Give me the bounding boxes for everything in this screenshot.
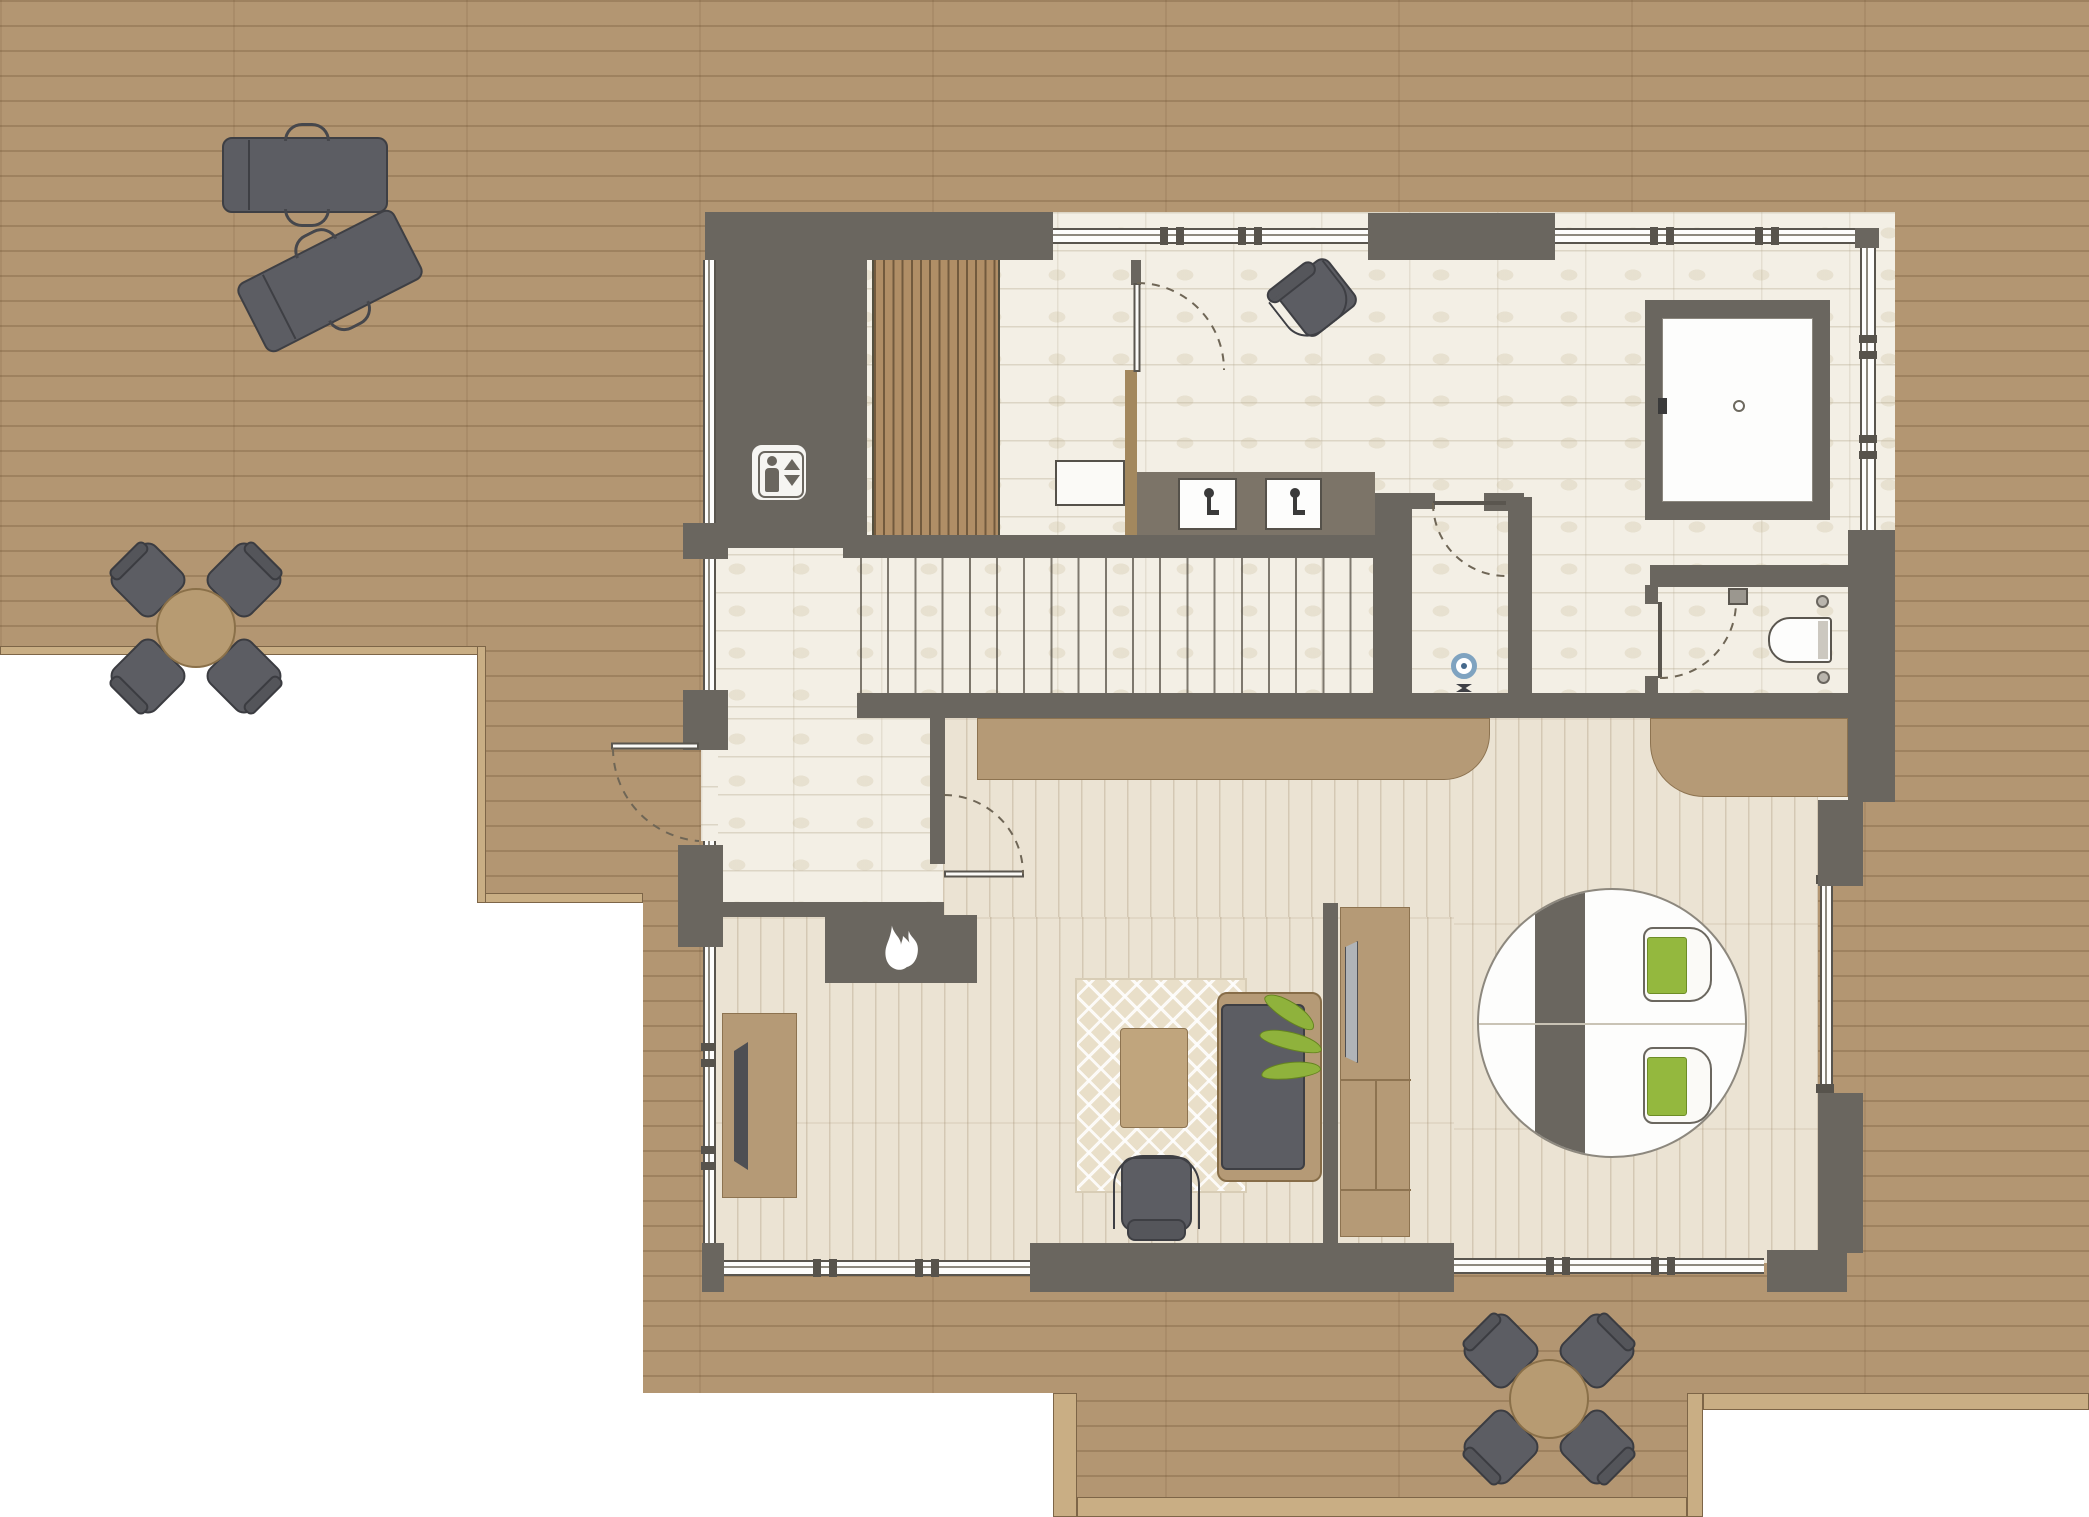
coffee-table — [1120, 1028, 1188, 1128]
toilet-tank — [1818, 621, 1828, 659]
window-mullion — [1562, 1257, 1570, 1275]
tv-sideboard — [722, 1013, 797, 1198]
window-mullion — [701, 1162, 716, 1170]
deck-edge-board — [1053, 1393, 1077, 1517]
wall-top-middle — [1368, 213, 1555, 260]
green-chair — [1643, 1047, 1712, 1124]
window-mullion — [1651, 1257, 1659, 1275]
green-chair-cushion — [1647, 1057, 1687, 1116]
window-right-upper — [1860, 242, 1876, 534]
toilet — [1768, 617, 1832, 663]
drain-icon — [1451, 653, 1477, 679]
window-mullion — [813, 1259, 821, 1277]
window-mullion — [915, 1259, 923, 1277]
deck-edge-board — [1703, 1393, 2089, 1410]
window-mullion — [1650, 227, 1658, 245]
media-cabinet — [1340, 907, 1410, 1237]
round-table-seam — [1479, 1023, 1747, 1025]
elevator-person-body — [765, 468, 779, 492]
elevator-shaft — [712, 258, 867, 548]
elevator-icon — [752, 445, 806, 500]
flame-icon — [875, 924, 927, 974]
wall-wc-west-stub — [1645, 585, 1658, 604]
wall-stairs-south — [857, 693, 1848, 718]
wall-shower-west — [1390, 505, 1412, 693]
bathtub-surround — [1645, 300, 1830, 520]
floor-plan-canvas — [0, 0, 2089, 1517]
sofa-seat — [1221, 1004, 1305, 1170]
window-mullion — [1771, 227, 1779, 245]
window-mullion — [1666, 227, 1674, 245]
sink-basin — [1265, 478, 1322, 530]
window-mullion — [1859, 351, 1877, 359]
window-mullion — [1546, 1257, 1554, 1275]
wood-slat-screen — [872, 258, 1000, 535]
window-mullion — [1176, 227, 1184, 245]
window-mullion — [1816, 1084, 1834, 1093]
wall-corner-bottomright — [1767, 1250, 1847, 1292]
wall-shower-east — [1508, 497, 1532, 718]
window-mullion — [1667, 1257, 1675, 1275]
sofa — [1217, 992, 1322, 1182]
tv-screen — [734, 1042, 748, 1170]
wall-right-bedroom-a — [1818, 800, 1863, 886]
wall-stairs-north — [843, 535, 1377, 558]
vanity-counter — [1137, 472, 1375, 535]
window-living-south — [714, 1260, 1032, 1276]
outdoor-round-table — [156, 588, 236, 668]
built-in-cabinet — [977, 718, 1490, 780]
tile-floor-vestibule — [705, 718, 945, 918]
wall-shower-jamb — [1407, 493, 1435, 509]
deck-edge-board — [1077, 1497, 1687, 1517]
deck-edge-board — [1687, 1393, 1703, 1517]
window-bedroom-east — [1820, 884, 1833, 1093]
window-mullion — [701, 1146, 716, 1154]
faucet-icon — [1293, 510, 1305, 515]
wall-left-pier — [678, 845, 723, 947]
wall-wc-north — [1650, 565, 1848, 587]
bathtub-drain — [1733, 400, 1745, 412]
wall-left-pier — [683, 523, 728, 559]
round-table — [1477, 888, 1747, 1158]
green-chair — [1643, 927, 1712, 1002]
elevator-down-arrow — [784, 475, 800, 486]
wall-post-wood — [1125, 370, 1137, 535]
window-mullion — [1160, 227, 1168, 245]
window-mullion — [701, 1059, 716, 1067]
elevator-person-head — [767, 456, 777, 466]
media-partition-wall — [1323, 903, 1338, 1245]
wall-top-left — [705, 212, 1053, 260]
wall-bath-door-jamb — [1131, 260, 1141, 285]
wall-corner-bottomleft — [702, 1243, 724, 1292]
window-mullion — [1238, 227, 1246, 245]
fireplace — [825, 915, 977, 983]
wall-shower-jamb — [1484, 493, 1524, 511]
wall-left-pier — [683, 690, 728, 750]
wall-right-bedroom-b — [1818, 1093, 1863, 1253]
wall-bottom-solid — [1030, 1243, 1454, 1292]
elevator-up-arrow — [784, 459, 800, 470]
deck-edge-board — [485, 893, 643, 903]
wall-vestibule-east — [930, 718, 945, 864]
wall-fitting — [1816, 595, 1829, 608]
window-mullion — [1859, 451, 1877, 459]
window-mullion — [1859, 335, 1877, 343]
window-bedroom-south — [1452, 1258, 1764, 1274]
built-in-cabinet — [1650, 718, 1848, 797]
tv-screen — [1345, 941, 1358, 1063]
bathtub-faucet — [1658, 398, 1667, 414]
window-mullion — [829, 1259, 837, 1277]
open-door-leaf — [1055, 460, 1125, 506]
green-chair-cushion — [1647, 937, 1687, 994]
sink-basin — [1178, 478, 1237, 530]
window-mullion — [1859, 435, 1877, 443]
wall-corner-topright — [1855, 228, 1879, 248]
sun-lounger — [222, 137, 388, 213]
wall-wc-west-stub — [1645, 676, 1658, 694]
faucet-icon — [1207, 510, 1219, 515]
toilet-cistern — [1728, 588, 1748, 605]
armchair — [1113, 1153, 1200, 1243]
outdoor-round-table — [1509, 1359, 1589, 1439]
wall-right-upper — [1848, 530, 1895, 802]
window-mullion — [1254, 227, 1262, 245]
staircase — [860, 558, 1377, 693]
window-mullion — [931, 1259, 939, 1277]
deck-edge-board — [477, 646, 486, 903]
window-mullion — [1755, 227, 1763, 245]
window-mullion — [701, 1043, 716, 1051]
exterior-door-opening — [701, 748, 718, 841]
wall-fitting — [1817, 671, 1830, 684]
